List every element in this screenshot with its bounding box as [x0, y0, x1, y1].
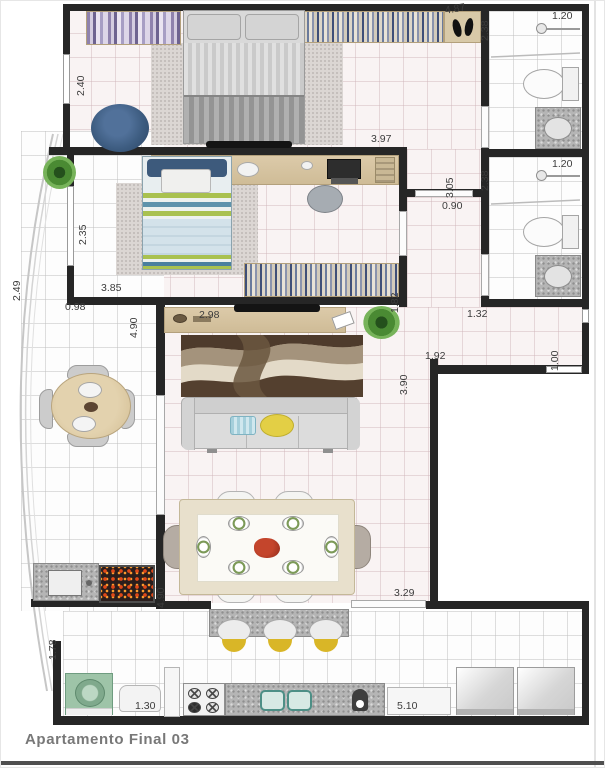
desk-lamp: [301, 161, 313, 170]
faucet-dot: [86, 580, 92, 586]
bed-blanket: [143, 219, 231, 255]
bottom-edge-line: [1, 761, 605, 765]
bedroom2-door: [399, 211, 407, 256]
faucet-hole: [356, 700, 364, 708]
kitchen-sliding-door: [351, 600, 426, 608]
bedroom1-window: [63, 54, 70, 104]
bathroom2-vanity: [535, 255, 581, 297]
table-centerpiece: [84, 402, 98, 412]
stove: [183, 683, 225, 716]
dim-dining-height: 4.90: [155, 588, 167, 608]
centerpiece: [254, 538, 280, 558]
bedroom-tv: [206, 141, 292, 148]
fridge-base: [457, 709, 513, 715]
bed-duvet: [184, 95, 304, 143]
wall-bedrooms-divider: [49, 147, 407, 155]
dim-bedroom2-width: 3.85: [101, 282, 121, 294]
sofa-leg: [207, 449, 217, 453]
bathroom1-vanity: [535, 107, 581, 149]
burner: [206, 702, 219, 713]
dim-living-right-height: 3.90: [398, 375, 410, 395]
wall-bottom: [56, 716, 589, 725]
dim-living-bottom: 3.29: [394, 587, 414, 599]
plate: [228, 560, 250, 575]
shoe-icon: [463, 17, 474, 36]
desk-chair: [307, 185, 343, 213]
shoe-icon: [451, 18, 463, 37]
right-edge-line: [594, 1, 596, 768]
dim-hall-height: 3.05: [444, 178, 456, 198]
hallway-floor: [407, 201, 481, 307]
wall-kitchen-top-b: [426, 601, 589, 609]
dim-entry-width: 1.92: [425, 350, 445, 362]
washing-machine: [65, 673, 113, 715]
plate: [196, 536, 211, 558]
wall-bedroom1-left-a: [63, 4, 70, 54]
dim-bedroom1-height: 2.40: [75, 76, 87, 96]
gourmet-counter: [33, 563, 99, 601]
toilet-tank: [562, 215, 579, 249]
entry-window: [582, 309, 589, 323]
bed-stripes-bottom: [143, 255, 231, 269]
dim-entry-height: 1.00: [549, 351, 561, 371]
toilet: [523, 69, 565, 99]
washer-panel: [66, 708, 112, 715]
plate: [78, 382, 102, 398]
pouf: [91, 104, 149, 152]
decor-vase: [173, 314, 187, 323]
dim-bath2-width: 1.20: [552, 158, 572, 170]
dim-living-top-width: 4.90: [128, 318, 140, 338]
keyboard: [331, 178, 358, 184]
plate: [282, 560, 304, 575]
tall-cabinet: [164, 667, 180, 717]
balcony-plant: [43, 156, 76, 189]
dim-bath2-height: 2.38: [479, 171, 491, 191]
shower-arm: [542, 175, 580, 177]
living-tv: [234, 304, 320, 312]
dim-bedroom2-height: 2.35: [77, 225, 89, 245]
wall-bedroom1-left-b: [63, 104, 70, 153]
pillow: [187, 14, 241, 40]
kitchen-sink: [260, 690, 285, 711]
bedroom2-window: [67, 186, 74, 266]
burner: [188, 702, 201, 713]
dining-table: [179, 499, 355, 595]
gourmet-sink: [48, 570, 82, 596]
dim-bath2-bottom: 1.32: [467, 308, 487, 320]
refrigerator: [456, 667, 514, 715]
desk-lamp: [237, 162, 259, 177]
dim-laundry-width: 1.30: [135, 700, 155, 712]
bed-sheet: [184, 43, 304, 95]
plate: [282, 516, 304, 531]
wall-bathrooms-bottom: [481, 299, 589, 307]
wall-top: [63, 4, 589, 11]
sofa-armrest: [182, 398, 195, 450]
bedroom2-wardrobe: [244, 263, 399, 297]
computer-monitor: [327, 159, 361, 179]
shower-arm: [542, 28, 580, 30]
pillow-blue: [230, 416, 256, 435]
plan-title: Apartamento Final 03: [25, 731, 190, 748]
plate: [324, 536, 339, 558]
bathroom1-door: [481, 106, 489, 148]
sofa-armrest: [347, 398, 360, 450]
floorplan-canvas: 2.40 4.87 2.38 1.20 3.97 3.05 0.90 2.38 …: [0, 0, 605, 768]
desk-shelf: [375, 157, 395, 183]
dim-gourmet-height: 1.78: [47, 640, 59, 660]
burner: [206, 688, 219, 699]
dim-hall-door: 0.90: [442, 200, 462, 212]
balcony-table: [51, 373, 131, 439]
sink-basin: [544, 117, 572, 140]
wall-living-right: [430, 359, 438, 606]
dim-bedroom1-bottom: 3.97: [371, 133, 391, 145]
pillow: [245, 14, 299, 40]
sofa-leg: [323, 449, 333, 453]
balcony-sliding-door: [156, 395, 165, 515]
burner: [188, 688, 201, 699]
shower-head: [536, 170, 547, 181]
shower-head: [536, 23, 547, 34]
sofa-back: [194, 398, 348, 414]
refrigerator: [517, 667, 575, 715]
pillow-yellow: [260, 414, 294, 437]
wall-bathrooms-divider: [489, 149, 582, 157]
kitchen-counter: [225, 683, 385, 716]
bed-stripes-top: [143, 193, 231, 219]
wall-kitchen-right: [582, 601, 589, 725]
wall-bedroom2-right-a: [399, 147, 407, 211]
dim-kitchen-width: 5.10: [397, 700, 417, 712]
toilet: [523, 217, 565, 247]
sofa-seat-divider: [298, 416, 299, 448]
dim-terrace-height: 2.49: [11, 281, 23, 301]
dim-bath1-height: 2.38: [479, 21, 491, 41]
dim-terrace-width: 0.98: [65, 301, 85, 313]
faucet-icon: [352, 689, 368, 711]
kitchen-sink: [287, 690, 312, 711]
plate: [72, 416, 96, 432]
wardrobe-folded-clothes: [86, 11, 181, 45]
plate: [228, 516, 250, 531]
dim-corridor-height: 1.82: [389, 293, 401, 313]
fridge-base: [518, 709, 574, 715]
living-rug-base: [181, 335, 363, 397]
barbecue-grill: [99, 565, 155, 603]
sink-basin: [544, 265, 572, 288]
dim-bath1-width: 1.20: [552, 10, 572, 22]
wardrobe-hanging-clothes: [301, 11, 444, 43]
double-bed: [184, 11, 304, 143]
washer-drum: [75, 679, 105, 707]
single-bed: [143, 157, 231, 269]
dim-sideboard-width: 2.98: [199, 309, 219, 321]
pillow: [161, 169, 211, 193]
sofa: [181, 397, 359, 449]
bathroom2-door: [481, 254, 489, 296]
toilet-tank: [562, 67, 579, 101]
